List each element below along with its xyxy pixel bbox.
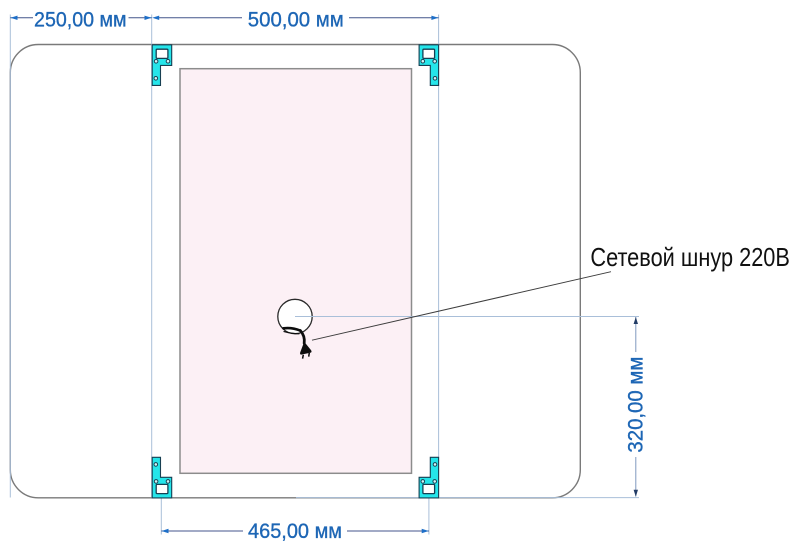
- svg-text:250,00 мм: 250,00 мм: [34, 7, 127, 31]
- svg-text:320,00 мм: 320,00 мм: [624, 357, 648, 453]
- svg-text:500,00 мм: 500,00 мм: [248, 7, 344, 31]
- svg-text:Сетевой шнур 220В: Сетевой шнур 220В: [590, 242, 790, 272]
- svg-text:465,00 мм: 465,00 мм: [248, 519, 342, 543]
